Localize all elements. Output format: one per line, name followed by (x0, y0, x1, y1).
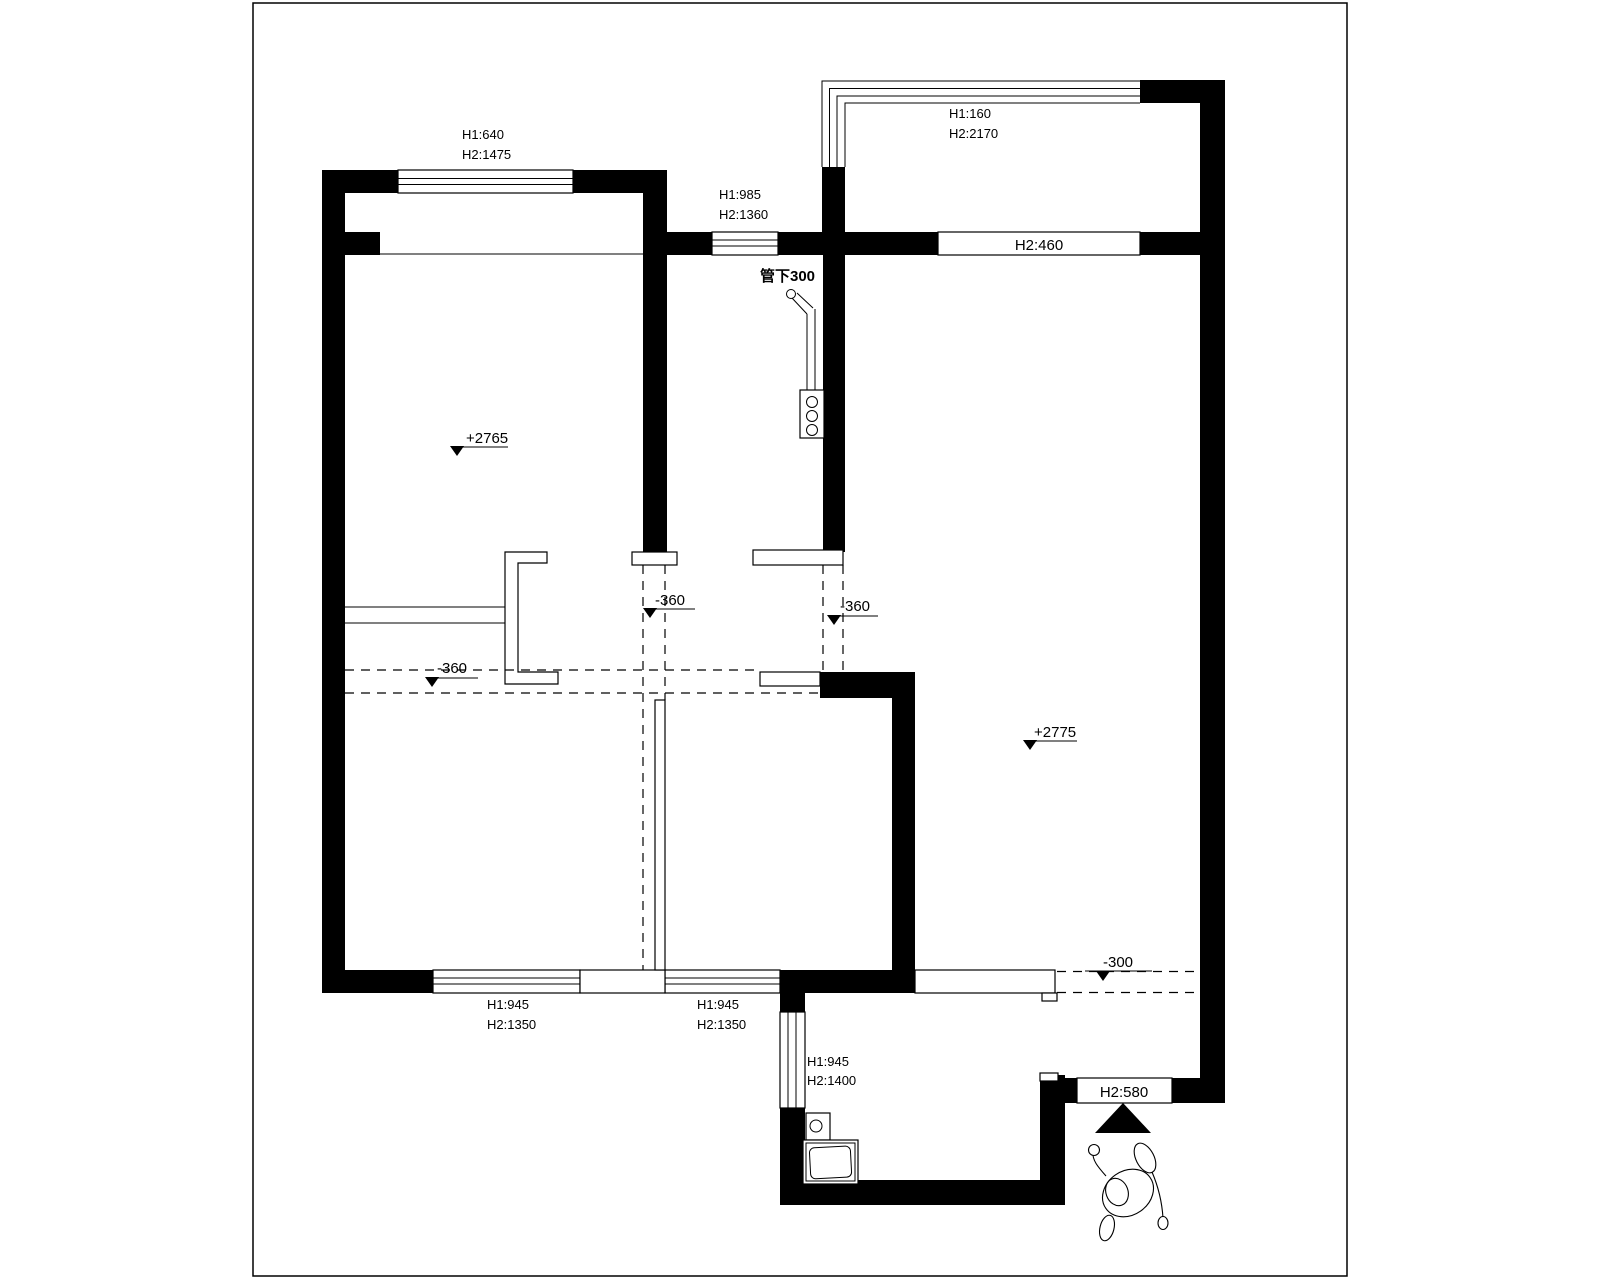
level-value: -360 (840, 598, 870, 615)
wall-bottom-mid (780, 970, 915, 993)
wall-bedroom-kitchen (643, 193, 667, 552)
window-label: H2:2170 (949, 126, 998, 141)
window-label: H1:640 (462, 127, 504, 142)
level-value: +2765 (466, 430, 508, 447)
wall-bottom-left (322, 970, 433, 993)
window-bottom-mid (665, 970, 780, 993)
level-value: -360 (437, 660, 467, 677)
floor-drop-marker-mid: -360 (643, 592, 695, 618)
wall-kitchen-top-a (667, 232, 712, 255)
window-label: H2:1400 (807, 1073, 856, 1088)
level-value: +2775 (1034, 724, 1076, 741)
partition-channel (505, 552, 558, 684)
wall-notch-a (1042, 993, 1057, 1001)
wall-entry-left (1040, 1078, 1077, 1103)
floor-drop-marker-entry: -300 (1085, 954, 1152, 981)
window-label: H1:985 (719, 187, 761, 202)
window-label: H2:1350 (697, 1017, 746, 1032)
wall-kitchen-top-b (778, 232, 845, 255)
pipe-end-circle (787, 290, 796, 299)
entry-arrow-icon (1095, 1103, 1151, 1133)
wall-end-cap-mid (760, 672, 820, 686)
floor-drop-marker-right: -360 (827, 598, 878, 625)
window-mid-top (712, 232, 778, 255)
floor-plan-drawing: +2765 -360 -360 -360 +2775 -300 (0, 0, 1600, 1280)
thin-partitions (345, 254, 665, 970)
wall-thin-entry (915, 970, 1055, 993)
window-label: H2:1360 (719, 207, 768, 222)
opening-label: H2:460 (1015, 237, 1063, 254)
wall-left-exterior (322, 170, 345, 993)
wall-kitchen-living (823, 255, 845, 552)
partition-bedrooms (655, 700, 665, 970)
window-label: H1:945 (697, 997, 739, 1012)
pipe-box (800, 390, 824, 438)
balcony-window (822, 81, 1140, 167)
wall-right-exterior (1200, 80, 1225, 1103)
wall-notch-b (1040, 1073, 1058, 1081)
wall-end-cap-left (632, 552, 677, 565)
window-side-vertical (780, 1012, 805, 1108)
wall-living-top-a (845, 232, 938, 255)
window-label: H2:1350 (487, 1017, 536, 1032)
level-marker-living: +2775 (1023, 724, 1077, 750)
wall-entry-right (1172, 1078, 1225, 1103)
sink (803, 1140, 858, 1184)
wall-room-living (892, 698, 915, 993)
wall-top-left-a (322, 170, 398, 193)
window-label: H1:945 (807, 1054, 849, 1069)
opening-label: H2:580 (1100, 1084, 1148, 1101)
wall-living-top-b (1140, 232, 1200, 255)
person-figure-icon (1089, 1140, 1169, 1243)
wall-corner-block (780, 993, 805, 1012)
level-markers: +2765 -360 -360 -360 +2775 -300 (425, 430, 1152, 981)
level-value: -360 (655, 592, 685, 609)
level-value: -300 (1103, 954, 1133, 971)
pipe-riser-symbol (787, 290, 825, 439)
floor-plan-canvas: +2765 -360 -360 -360 +2775 -300 (0, 0, 1600, 1280)
wall-thin-under-window (580, 970, 665, 993)
window-label: H1:160 (949, 106, 991, 121)
window-bottom-left (433, 970, 580, 993)
pipe-note: 管下300 (760, 267, 815, 285)
window-label: H1:945 (487, 997, 529, 1012)
window-label: H2:1475 (462, 147, 511, 162)
wall-end-cap-right (753, 550, 843, 565)
kitchen-fixtures (803, 1113, 858, 1184)
wall-balcony-pier (822, 167, 845, 233)
wall-pier-left (345, 232, 380, 255)
wall-mid-horizontal (820, 672, 915, 698)
demolished-wall-lines (345, 565, 1199, 993)
floor-drop-marker-left: -360 (425, 660, 478, 687)
level-marker-bedroom: +2765 (450, 430, 508, 456)
window-top-left (398, 170, 573, 193)
wall-top-left-b (573, 170, 667, 193)
